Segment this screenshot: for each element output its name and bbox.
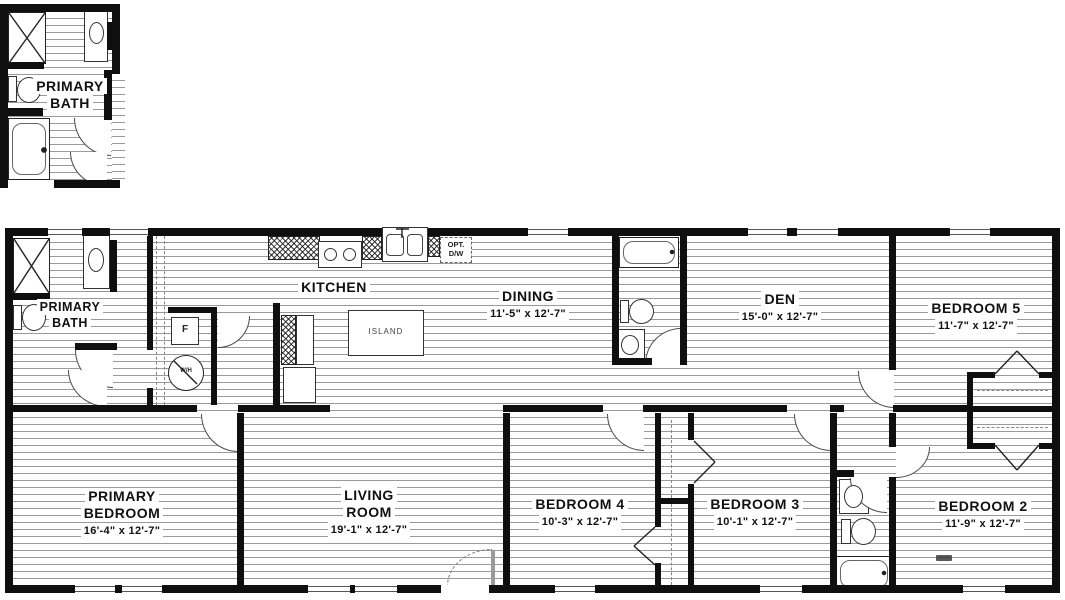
bathtub-inner (12, 123, 46, 175)
living-room-name1: LIVING (341, 487, 397, 503)
water-heater-label: W/H (168, 368, 204, 374)
sink-basin (89, 22, 104, 44)
pantry-counter (281, 315, 296, 365)
wall-segment (612, 358, 652, 365)
kitchen-counter (428, 236, 440, 257)
window (797, 228, 838, 236)
wall-segment (830, 413, 837, 585)
shower (13, 238, 50, 294)
window (122, 585, 162, 593)
island-label: ISLAND (348, 327, 424, 336)
living-room-label: LIVING ROOM 19'-1" x 12'-7" (307, 487, 431, 538)
burner (343, 248, 356, 261)
closet-rod-dashed (977, 427, 1048, 428)
kitchen-cabinet (283, 367, 316, 403)
dining-name: DINING (499, 288, 557, 304)
opt-dw-label: OPT. D/W (440, 240, 472, 258)
closet-rod-dashed (164, 236, 165, 405)
primary-bedroom-label: PRIMARY BEDROOM 16'-4" x 12'-7" (60, 488, 184, 539)
wall-segment (688, 413, 694, 440)
wall-segment (1039, 372, 1052, 378)
bedroom5-label: BEDROOM 5 11'-7" x 12'-7" (914, 300, 1038, 334)
door-opening (441, 585, 489, 593)
bathtub-inner (840, 560, 888, 588)
kitchen-counter (362, 236, 382, 260)
inset-primary-bath-label: PRIMARY BATH (20, 78, 120, 112)
sink-basin (88, 248, 104, 272)
wall-segment (889, 413, 896, 447)
closet-rod-dashed (671, 504, 672, 585)
den-label: DEN 15'-0" x 12'-7" (718, 291, 842, 325)
window (110, 228, 148, 236)
entry-door-panel (491, 551, 495, 587)
window (528, 228, 568, 236)
wall-segment (1052, 228, 1060, 593)
wall-segment (643, 405, 787, 412)
wall-segment (107, 22, 112, 50)
primary-bath-name2: BATH (49, 315, 91, 331)
den-dims: 15'-0" x 12'-7" (739, 309, 821, 325)
bedroom4-dims: 10'-3" x 12'-7" (539, 514, 621, 530)
bedroom2-label: BEDROOM 2 11'-9" x 12'-7" (921, 498, 1045, 532)
toilet-bowl (851, 518, 876, 545)
wall-segment (837, 470, 854, 477)
kitchen-label: KITCHEN (284, 279, 384, 296)
wall-segment (0, 4, 120, 12)
primary-bedroom-dims: 16'-4" x 12'-7" (81, 523, 163, 539)
wall-segment (238, 405, 330, 412)
toilet-tank (8, 76, 17, 102)
bathtub-inner (623, 241, 675, 264)
kitchen-name: KITCHEN (298, 279, 370, 295)
sink-basin (621, 335, 639, 355)
wall-segment (211, 313, 217, 405)
wall-segment (54, 180, 120, 188)
wall-segment (1039, 443, 1052, 449)
bedroom2-dims: 11'-9" x 12'-7" (942, 516, 1024, 532)
wall-segment (273, 303, 280, 405)
wall-segment (889, 477, 896, 585)
bedroom4-name: BEDROOM 4 (532, 496, 627, 512)
inset-label-line1: PRIMARY (33, 78, 107, 94)
closet-rod-dashed (156, 236, 157, 405)
sink-basin-left (386, 234, 404, 256)
dining-dims: 11'-5" x 12'-7" (487, 306, 569, 322)
living-room-name2: ROOM (343, 504, 395, 520)
window (748, 228, 787, 236)
toilet-tank (841, 519, 851, 544)
window (355, 585, 397, 593)
primary-bath-name1: PRIMARY (37, 299, 104, 315)
primary-bath-label: PRIMARY BATH (20, 299, 120, 331)
wall-segment (893, 405, 967, 412)
toilet-bowl (629, 299, 654, 324)
bedroom3-dims: 10'-1" x 12'-7" (714, 514, 796, 530)
sink-basin-right (407, 234, 423, 256)
wall-segment (0, 4, 8, 188)
window (308, 585, 350, 593)
wall-segment (147, 236, 153, 350)
wall-segment (5, 228, 13, 593)
bedroom2-name: BEDROOM 2 (935, 498, 1030, 514)
wall-segment (110, 240, 117, 292)
wall-segment (503, 405, 603, 412)
wall-segment (4, 62, 44, 69)
wall-segment (612, 236, 619, 365)
furnace-label: F (171, 324, 199, 335)
wall-segment (830, 405, 844, 412)
wall-segment (112, 4, 120, 74)
print-artifact (936, 555, 952, 561)
wall-segment (655, 498, 694, 504)
den-name: DEN (761, 291, 798, 307)
inset-label-line2: BATH (47, 95, 93, 111)
primary-bedroom-name1: PRIMARY (85, 488, 159, 504)
window (950, 228, 990, 236)
shower (8, 12, 46, 64)
kitchen-counter (268, 236, 320, 260)
wall-segment (168, 307, 217, 313)
wall-segment (680, 236, 687, 365)
dining-label: DINING 11'-5" x 12'-7" (466, 288, 590, 322)
floor-plan: PRIMARY BATH F W/H OPT. D/W ISLAND (0, 0, 1065, 600)
wall-segment (967, 443, 995, 449)
window (760, 585, 802, 593)
bedroom3-name: BEDROOM 3 (707, 496, 802, 512)
toilet-tank (620, 300, 629, 323)
wall-segment (147, 388, 153, 405)
closet-rod-dashed (671, 420, 672, 498)
wall-segment (655, 563, 661, 585)
wall-segment (967, 372, 995, 378)
window (963, 585, 1005, 593)
refrigerator (296, 315, 314, 365)
wall-segment (237, 413, 244, 585)
window (75, 585, 115, 593)
sink-basin (844, 485, 863, 508)
wall-segment (75, 343, 117, 350)
wall-segment (889, 236, 896, 370)
window (48, 228, 82, 236)
bedroom3-label: BEDROOM 3 10'-1" x 12'-7" (693, 496, 817, 530)
wall-segment (655, 413, 661, 527)
wall-segment (967, 406, 1052, 412)
window (555, 585, 595, 593)
wall-segment (503, 413, 510, 585)
bedroom4-label: BEDROOM 4 10'-3" x 12'-7" (518, 496, 642, 530)
primary-bedroom-name2: BEDROOM (81, 505, 164, 521)
burner (324, 248, 337, 261)
bedroom5-dims: 11'-7" x 12'-7" (935, 318, 1017, 334)
closet-rod-dashed (977, 390, 1048, 391)
wall-segment (5, 585, 1060, 593)
living-room-dims: 19'-1" x 12'-7" (328, 522, 410, 538)
bedroom5-name: BEDROOM 5 (928, 300, 1023, 316)
wall-segment (13, 405, 197, 412)
